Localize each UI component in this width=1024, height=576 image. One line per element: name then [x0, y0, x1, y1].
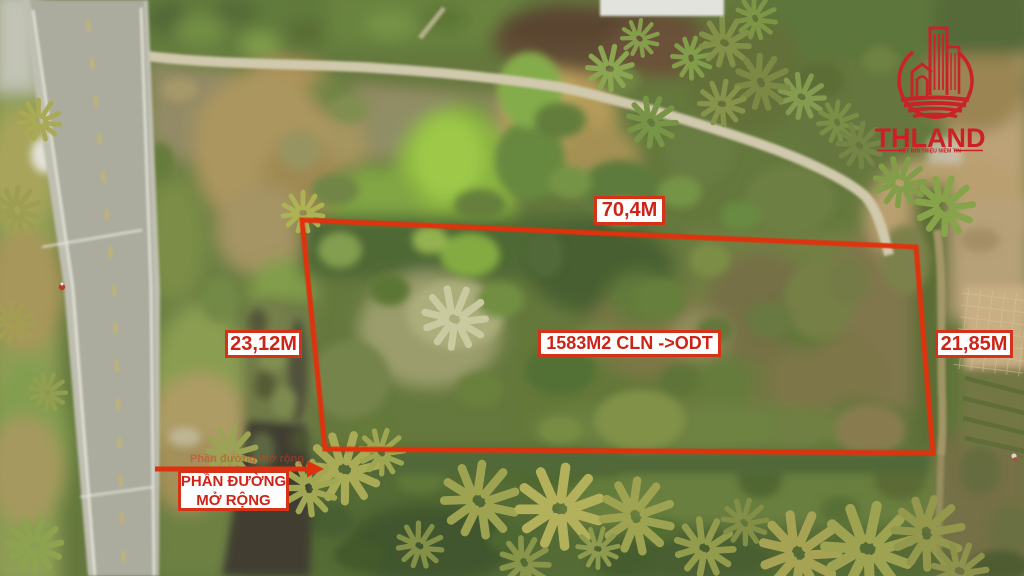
svg-text:KẾT NỐI TRIỆU NIỀM TIN: KẾT NỐI TRIỆU NIỀM TIN — [899, 147, 962, 155]
